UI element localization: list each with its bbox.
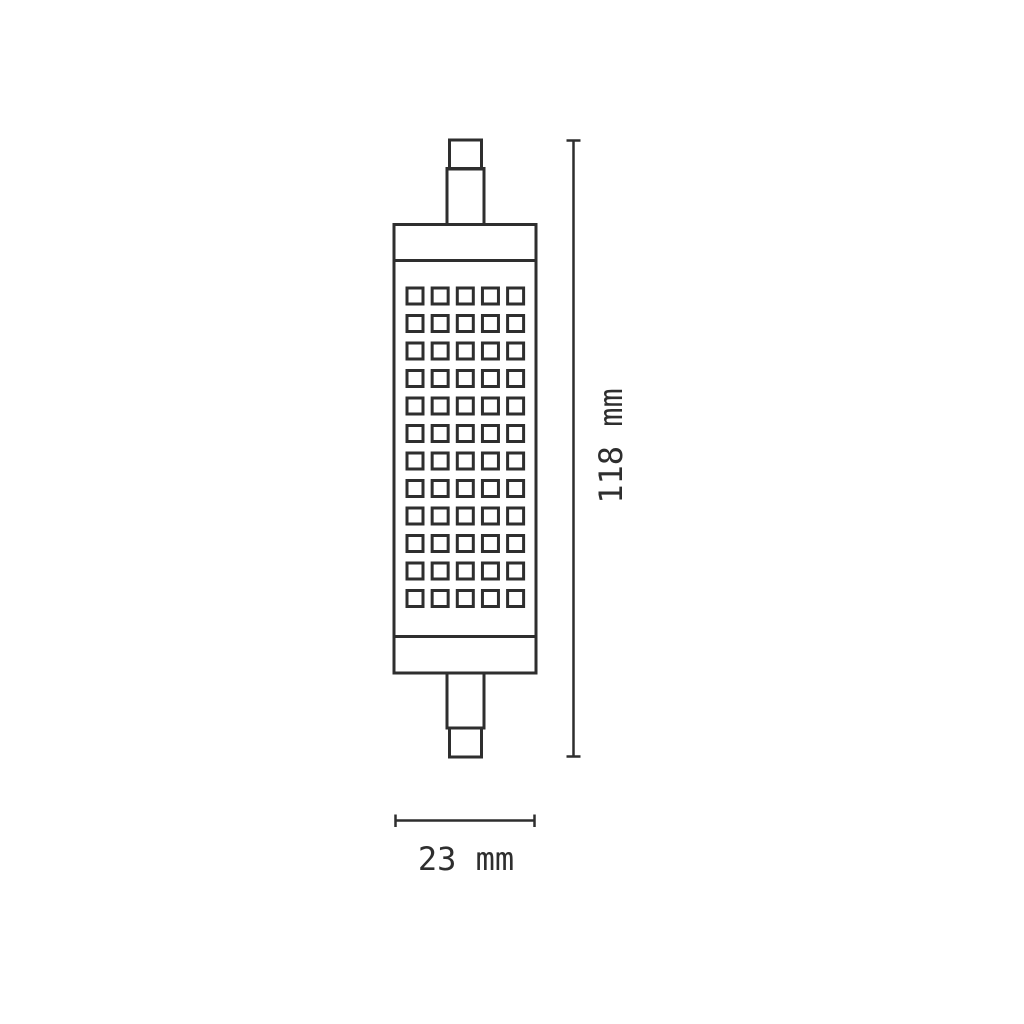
led-chip bbox=[508, 316, 524, 332]
led-chip bbox=[508, 453, 524, 469]
led-chip bbox=[457, 536, 473, 552]
led-chip bbox=[457, 563, 473, 579]
led-chip bbox=[457, 453, 473, 469]
led-chip bbox=[432, 508, 448, 524]
led-chip bbox=[457, 508, 473, 524]
led-chip bbox=[457, 288, 473, 304]
led-chip bbox=[457, 371, 473, 387]
led-chip bbox=[508, 508, 524, 524]
led-chip bbox=[457, 591, 473, 607]
led-chip bbox=[482, 508, 498, 524]
led-chip bbox=[508, 288, 524, 304]
led-chip bbox=[482, 371, 498, 387]
led-chip bbox=[407, 536, 423, 552]
top-contact-tip bbox=[450, 140, 482, 169]
led-chip bbox=[432, 536, 448, 552]
led-chip bbox=[482, 591, 498, 607]
led-chip bbox=[482, 453, 498, 469]
led-chip bbox=[432, 398, 448, 414]
led-chip bbox=[457, 481, 473, 497]
led-chip bbox=[508, 426, 524, 442]
led-chip bbox=[482, 536, 498, 552]
top-contact-pin bbox=[447, 169, 484, 225]
led-chip bbox=[432, 371, 448, 387]
led-chip bbox=[432, 343, 448, 359]
width-dimension: 23 mm bbox=[396, 815, 535, 879]
width-dimension-label: 23 mm bbox=[418, 840, 514, 878]
led-chip bbox=[482, 316, 498, 332]
led-chip bbox=[407, 481, 423, 497]
led-chip bbox=[482, 343, 498, 359]
led-chip bbox=[457, 426, 473, 442]
led-chip bbox=[407, 288, 423, 304]
led-chip bbox=[432, 591, 448, 607]
led-chip-grid bbox=[407, 288, 524, 607]
led-chip bbox=[482, 426, 498, 442]
led-chip bbox=[432, 481, 448, 497]
led-chip bbox=[432, 453, 448, 469]
lamp-dimension-diagram: 118 mm 23 mm bbox=[0, 0, 1024, 1024]
height-dimension: 118 mm bbox=[567, 141, 631, 757]
led-chip bbox=[407, 343, 423, 359]
led-chip bbox=[407, 371, 423, 387]
led-chip bbox=[482, 481, 498, 497]
led-chip bbox=[508, 371, 524, 387]
led-chip bbox=[407, 508, 423, 524]
led-chip bbox=[407, 398, 423, 414]
led-chip bbox=[482, 563, 498, 579]
lamp-drawing bbox=[394, 140, 536, 757]
led-chip bbox=[432, 563, 448, 579]
led-chip bbox=[482, 288, 498, 304]
led-chip bbox=[508, 563, 524, 579]
led-chip bbox=[508, 536, 524, 552]
bottom-contact-tip bbox=[450, 728, 482, 757]
height-dimension-label: 118 mm bbox=[592, 388, 630, 504]
led-chip bbox=[432, 426, 448, 442]
led-chip bbox=[508, 343, 524, 359]
led-chip bbox=[407, 563, 423, 579]
bottom-contact-pin bbox=[447, 673, 484, 728]
led-chip bbox=[508, 398, 524, 414]
led-chip bbox=[432, 288, 448, 304]
led-chip bbox=[407, 426, 423, 442]
led-chip bbox=[508, 481, 524, 497]
led-chip bbox=[407, 316, 423, 332]
led-chip bbox=[407, 591, 423, 607]
diagram-canvas: 118 mm 23 mm bbox=[0, 0, 1024, 1024]
led-chip bbox=[508, 591, 524, 607]
led-chip bbox=[457, 398, 473, 414]
led-chip bbox=[407, 453, 423, 469]
led-chip bbox=[432, 316, 448, 332]
led-chip bbox=[457, 343, 473, 359]
led-chip bbox=[457, 316, 473, 332]
led-chip bbox=[482, 398, 498, 414]
